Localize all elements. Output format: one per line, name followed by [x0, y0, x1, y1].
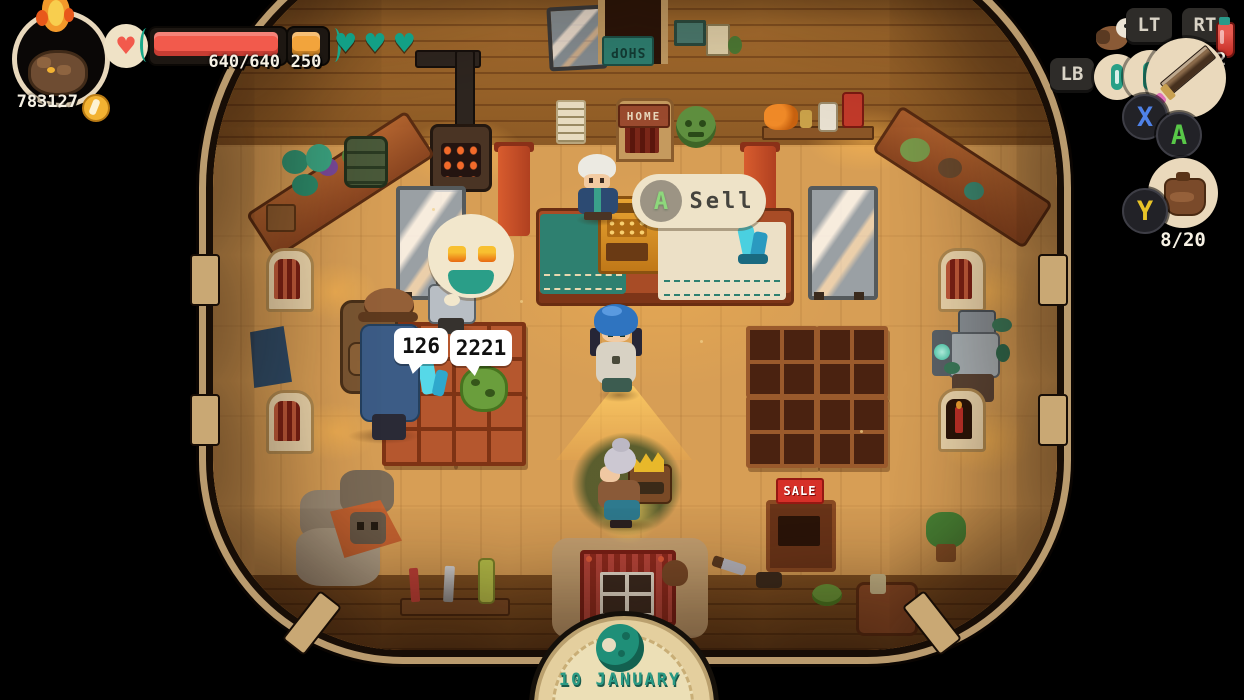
sloth-creature-icon	[900, 138, 930, 162]
inventory-count: 8/20	[1146, 228, 1220, 252]
price-value: 2221	[456, 336, 507, 360]
teal-bush-icon	[306, 144, 332, 172]
creature-spot	[471, 379, 480, 386]
shop-sign: SHOP	[602, 36, 654, 66]
extra-hearts-row: ♥ ♥ ♥	[334, 26, 430, 62]
companion-wing	[1096, 30, 1110, 44]
sell-label-wrap: Sell	[686, 186, 758, 216]
home-sign-label: HOME	[627, 110, 662, 123]
cloth-trim	[664, 280, 780, 296]
dust-particle	[520, 300, 523, 303]
old-lady-skirt	[604, 500, 640, 520]
lt-button[interactable]: LT	[1126, 8, 1172, 42]
bubble-tail	[444, 294, 460, 306]
plant-pot	[936, 544, 956, 562]
hood-highlight	[602, 306, 622, 316]
notice-scroll	[556, 100, 586, 144]
green-bottle-icon	[478, 558, 495, 604]
heart-icon: ♥	[115, 32, 137, 60]
coin-icon	[82, 94, 110, 122]
a-button-icon: A	[640, 180, 682, 222]
potted-plant-icon	[292, 174, 318, 196]
potion-cap	[1219, 17, 1230, 25]
home-sign: HOME	[618, 104, 670, 128]
y-label: Y	[1137, 196, 1153, 227]
dark-item	[756, 572, 782, 588]
dock-beam	[1038, 394, 1068, 446]
desk-plant	[926, 512, 966, 548]
coin-shine	[88, 98, 100, 115]
cloth-trim	[544, 274, 622, 290]
gold-glint-icon	[47, 67, 55, 73]
shopkeeper-eye	[600, 178, 604, 183]
sale-crate-opening	[778, 516, 820, 546]
dress-stitch	[612, 356, 620, 364]
table-jar-icon	[870, 574, 886, 594]
hair-bun	[612, 438, 630, 452]
creature-eye	[685, 120, 692, 127]
dust-particle	[700, 340, 703, 343]
stone-eye	[357, 522, 364, 530]
crate	[266, 204, 296, 232]
lb-label: LB	[1061, 63, 1084, 85]
lb-button[interactable]: LB	[1050, 58, 1094, 90]
dust-particle	[860, 430, 863, 433]
wall-picture	[674, 20, 706, 46]
health-value: 640/640	[158, 52, 280, 74]
golem-patch	[57, 65, 71, 75]
old-lady-feet	[610, 520, 632, 528]
smile-mouth-icon	[448, 270, 494, 294]
flame-icon	[48, 0, 64, 26]
sale-crate	[766, 500, 836, 572]
window-left-1	[266, 248, 314, 312]
dock-beam	[1038, 254, 1068, 306]
door-window-grid	[600, 572, 654, 616]
hat-brim	[358, 312, 418, 322]
display-table	[746, 326, 818, 398]
price-bubble: 2221	[450, 330, 512, 366]
slime-creature	[812, 584, 842, 606]
moss-patch	[996, 344, 1010, 362]
door-stud	[586, 556, 592, 562]
window-shutter	[946, 259, 972, 299]
shelf-item	[938, 158, 962, 178]
red-jar-icon	[842, 92, 864, 128]
sale-sign: SALE	[776, 478, 824, 504]
extra-heart-icon: ♥	[334, 29, 357, 59]
potion-shine	[1220, 30, 1224, 44]
crystal-base	[738, 254, 768, 264]
shopkeeper-eye	[589, 178, 593, 183]
window-shutter	[274, 259, 300, 299]
display-table	[816, 396, 888, 468]
brown-sack	[662, 560, 688, 586]
bag-tie	[1176, 172, 1190, 181]
stone-eye	[371, 522, 378, 530]
window-left-2	[266, 390, 314, 454]
shelf-item	[964, 182, 984, 200]
shop-sign-label: SHOP	[610, 44, 645, 59]
shopkeeper-legs	[584, 212, 612, 220]
window-right-2	[938, 388, 986, 452]
moon-spot	[622, 632, 630, 640]
glass-case-right	[808, 186, 878, 300]
x-label: X	[1137, 102, 1153, 133]
shopkeeper-scarf	[594, 188, 601, 212]
bubble-tail	[465, 363, 483, 377]
red-pillar-left	[498, 146, 530, 236]
robot-glow-orb	[934, 344, 950, 360]
case-leg	[814, 292, 824, 300]
shop-room: SHOP HOME	[213, 0, 1057, 650]
register-drawer	[606, 243, 648, 261]
shop-world: SHOP HOME	[213, 0, 1057, 650]
gold-amount: 783127	[12, 92, 78, 116]
shield-value: 250	[284, 52, 328, 74]
furnace	[430, 124, 492, 192]
a-button[interactable]: A	[1156, 112, 1202, 158]
plant-creature	[676, 106, 716, 148]
date-text: 10 JANUARY	[559, 670, 681, 690]
moss-patch	[944, 362, 960, 374]
emotion-bubble	[428, 214, 514, 298]
candle-icon	[955, 407, 963, 433]
window-shutter	[274, 401, 300, 441]
customer-skirt	[602, 378, 632, 392]
sell-prompt[interactable]: A Sell	[632, 174, 766, 228]
flame-eye-icon	[448, 246, 466, 262]
dock-beam	[190, 394, 220, 446]
white-jar-icon	[818, 102, 838, 132]
shopkeeper-face	[584, 174, 610, 189]
a-label: A	[1171, 120, 1187, 151]
lt-label: LT	[1138, 14, 1161, 36]
creature-spot	[485, 389, 495, 397]
charm-slit	[1115, 70, 1119, 84]
flame-icon	[36, 10, 48, 26]
extra-heart-icon: ♥	[393, 29, 416, 59]
teal-bush-icon	[282, 150, 308, 174]
furnace-embers	[441, 143, 481, 177]
a-button-glyph: A	[654, 187, 668, 215]
extra-heart-icon: ♥	[363, 29, 386, 59]
sell-label: Sell	[690, 189, 755, 214]
moss-patch	[992, 318, 1012, 332]
backpack-customer-legs	[372, 414, 406, 440]
small-jar-icon	[800, 110, 812, 128]
golem-avatar	[28, 50, 88, 96]
pumpkin-pile	[764, 104, 798, 130]
bag-highlight	[1170, 192, 1194, 202]
moon-spot	[618, 650, 625, 657]
creature-eye	[699, 120, 706, 127]
flame-icon	[64, 8, 74, 22]
game-screen: SHOP HOME	[0, 0, 1244, 700]
flame-eye-icon	[478, 246, 496, 262]
display-table	[746, 396, 818, 468]
wall-plant-icon	[728, 36, 742, 54]
sale-sign-label: SALE	[784, 484, 817, 498]
display-table	[816, 326, 888, 398]
sword-display-icon	[443, 566, 455, 602]
candle-flame-icon	[956, 401, 962, 409]
price-value: 126	[402, 334, 440, 358]
case-leg	[854, 292, 864, 300]
dock-beam	[190, 254, 220, 306]
moon-icon	[596, 624, 644, 672]
stone-golem-head	[350, 512, 386, 544]
wall-poster	[706, 24, 730, 56]
dust-particle	[432, 208, 435, 211]
window-right-1	[938, 248, 986, 312]
moon-crater	[602, 638, 616, 652]
price-bubble: 126	[394, 328, 448, 364]
door-stud	[658, 556, 664, 562]
date-label: 10 JANUARY	[546, 668, 694, 692]
rt-label: RT	[1194, 14, 1217, 36]
mossy-barrel	[344, 136, 388, 188]
creature-mouth	[688, 132, 704, 137]
